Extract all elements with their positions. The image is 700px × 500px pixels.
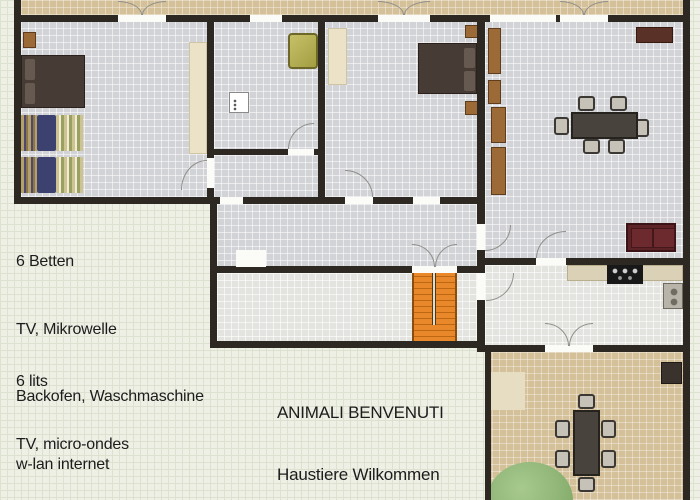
pillow <box>25 83 35 104</box>
bed-pillow-blue <box>37 157 56 193</box>
pillow <box>464 48 475 68</box>
chair <box>608 139 625 154</box>
pillow <box>25 59 35 80</box>
chair <box>583 139 600 154</box>
grill <box>661 362 682 384</box>
chair <box>578 96 595 111</box>
chair <box>555 420 570 438</box>
dining-table <box>571 112 638 139</box>
double-bed-2 <box>418 43 477 94</box>
bed-headboard <box>21 115 37 151</box>
chair <box>554 117 569 135</box>
stair-door-opening <box>412 266 457 273</box>
outdoor-table <box>573 410 600 476</box>
cabinet <box>488 80 501 104</box>
french-door-opening <box>118 15 166 22</box>
cabinet <box>491 147 506 195</box>
wardrobe <box>189 42 207 154</box>
balcony-door-opening <box>545 345 593 352</box>
french-door-opening <box>378 15 430 22</box>
outdoor-mat <box>491 372 525 410</box>
chair <box>578 394 595 409</box>
sofa-cushion <box>653 228 675 248</box>
sofa-cushion <box>631 228 653 248</box>
text-line: Haustiere Wilkommen <box>277 465 478 486</box>
wall-balcony-left <box>485 352 491 500</box>
sideboard <box>636 27 673 43</box>
text-line: 6 lits <box>16 371 134 392</box>
lower-balcony-floor <box>485 352 683 500</box>
wall-bathroom-bedroom2 <box>318 21 325 204</box>
wall-left-outer <box>14 0 21 204</box>
chair <box>601 420 616 438</box>
shower-tray <box>288 33 318 69</box>
stair-handrail <box>432 273 436 325</box>
double-bed-1 <box>21 55 85 108</box>
stove-hob <box>607 264 643 284</box>
chair <box>610 96 627 111</box>
chair <box>555 450 570 468</box>
washing-machine <box>229 92 249 113</box>
chair <box>578 477 595 492</box>
single-bed-2 <box>21 157 83 193</box>
pillow <box>464 71 475 91</box>
single-bed-1 <box>21 115 83 151</box>
wall-kitchen-top <box>477 258 690 265</box>
kitchen-sink <box>663 283 683 309</box>
window <box>250 15 282 22</box>
wardrobe <box>328 28 347 85</box>
bed-blanket-striped <box>56 115 83 151</box>
french-door-opening <box>560 15 608 22</box>
cabinet <box>491 107 506 143</box>
sofa <box>626 223 676 252</box>
door-opening <box>477 273 485 300</box>
bed-pillow-blue <box>37 115 56 151</box>
corridor-opening <box>236 250 266 267</box>
nightstand <box>23 32 36 48</box>
cabinet <box>488 28 501 74</box>
door-opening <box>207 158 214 188</box>
door-opening <box>413 197 440 204</box>
floor-title-text: PRIMO PIANO 80mq Wohnung im ersten Stock <box>9 443 254 500</box>
door-opening <box>288 149 314 155</box>
wall-rooms-bottom <box>14 197 480 204</box>
door-opening <box>220 197 243 204</box>
staircase <box>412 271 457 348</box>
door-opening <box>345 197 373 204</box>
door-opening <box>536 258 566 265</box>
bed-headboard <box>21 157 37 193</box>
text-line: 6 Betten <box>16 251 204 274</box>
door-opening <box>477 224 485 250</box>
chair <box>601 450 616 468</box>
pets-welcome-text: ANIMALI BENVENUTI Haustiere Wilkommen Pe… <box>277 362 478 500</box>
wall-stairhall-bottom <box>210 341 484 348</box>
window <box>490 15 556 22</box>
wall-right-outer <box>683 0 690 500</box>
bed-blanket-striped <box>56 157 83 193</box>
text-line: ANIMALI BENVENUTI <box>277 403 478 424</box>
floor-plan: 6 Betten TV, Mikrowelle Backofen, Waschm… <box>0 0 700 500</box>
